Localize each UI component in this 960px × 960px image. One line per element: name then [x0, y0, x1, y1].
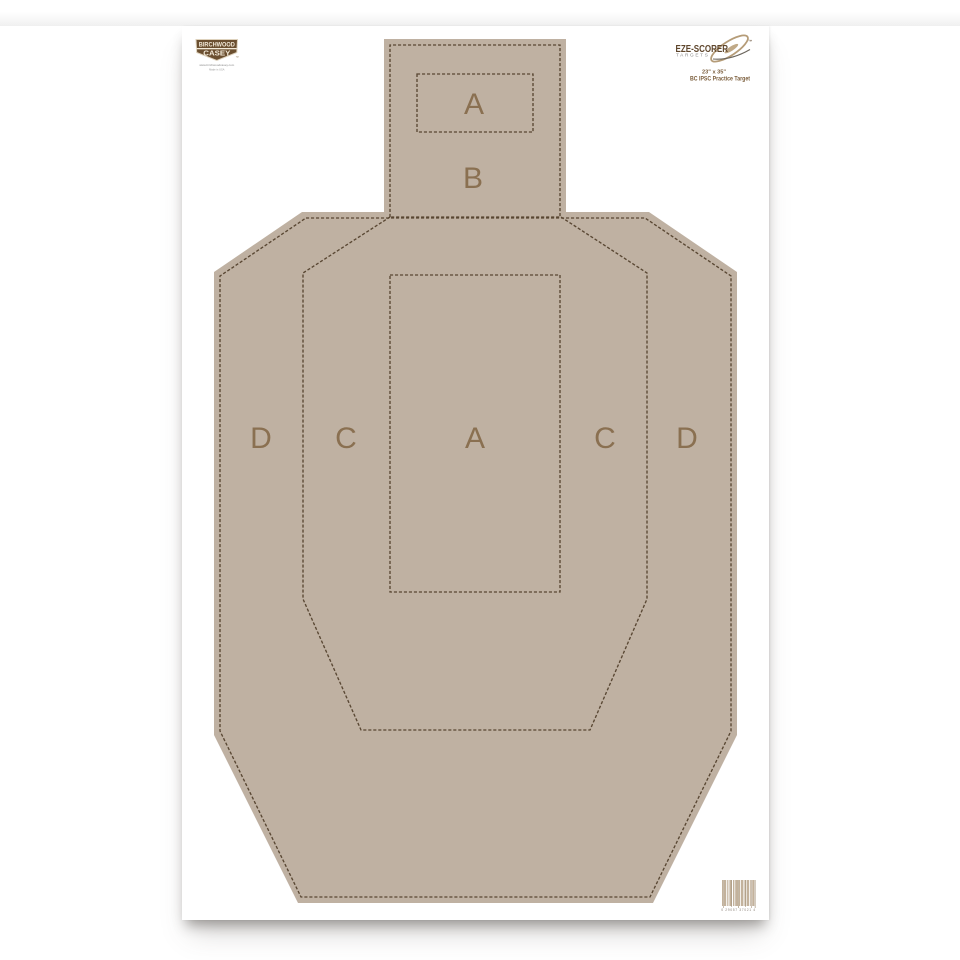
svg-text:CASEY: CASEY — [203, 49, 230, 58]
svg-text:TARGETS: TARGETS — [676, 53, 710, 58]
svg-text:A: A — [464, 88, 484, 121]
svg-text:A: A — [465, 422, 485, 455]
svg-text:23" x 35": 23" x 35" — [702, 70, 726, 76]
svg-text:D: D — [676, 422, 698, 455]
svg-text:™: ™ — [236, 56, 239, 60]
svg-text:™: ™ — [748, 39, 752, 44]
svg-text:BIRCHWOOD: BIRCHWOOD — [199, 42, 235, 49]
svg-text:D: D — [250, 422, 272, 455]
svg-text:B: B — [463, 162, 483, 195]
svg-text:Made in USA: Made in USA — [209, 68, 225, 72]
svg-text:0 29057 37021 4: 0 29057 37021 4 — [721, 908, 755, 912]
svg-text:www.birchwoodcasey.com: www.birchwoodcasey.com — [199, 63, 234, 67]
svg-text:BC IPSC Practice Target: BC IPSC Practice Target — [690, 76, 750, 82]
svg-text:C: C — [335, 422, 357, 455]
svg-text:C: C — [594, 422, 616, 455]
